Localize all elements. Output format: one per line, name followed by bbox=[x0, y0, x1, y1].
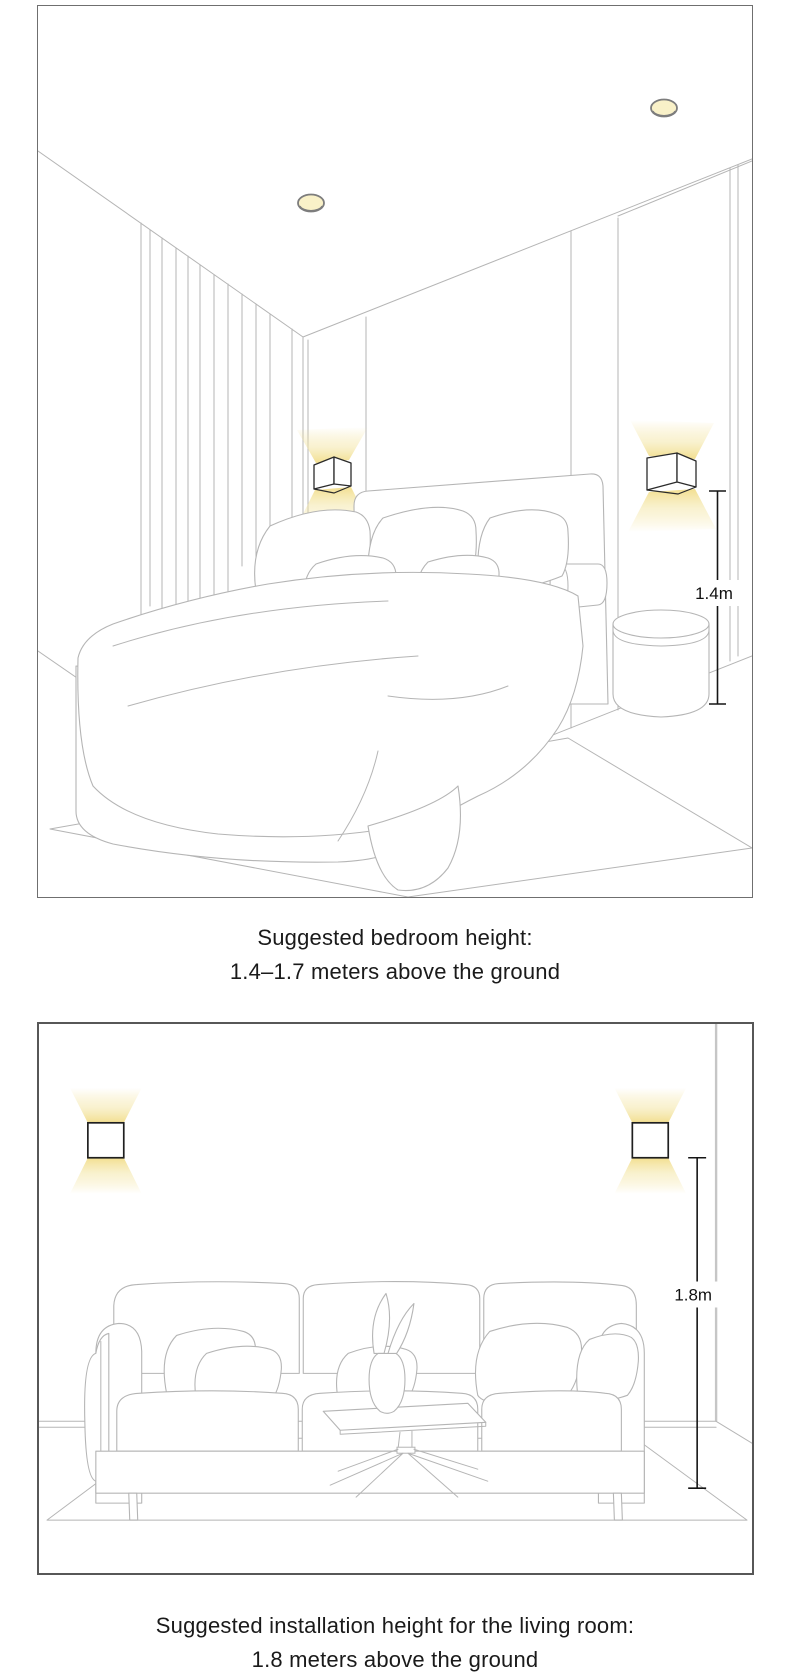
sofa-base bbox=[96, 1451, 644, 1493]
bedroom-caption: Suggested bedroom height: 1.4–1.7 meters… bbox=[0, 921, 790, 989]
seat-cushion bbox=[117, 1391, 298, 1451]
wall-lamp-left bbox=[70, 1088, 142, 1194]
lamp-glow-down bbox=[628, 489, 716, 532]
living-room-illustration: 1.8m bbox=[39, 1024, 752, 1573]
lamp-glow-down bbox=[614, 1158, 686, 1194]
ceiling-downlight-icon bbox=[298, 195, 324, 212]
seat-cushion bbox=[482, 1391, 622, 1451]
side-table bbox=[613, 610, 709, 717]
living-room-caption-line2: 1.8 meters above the ground bbox=[0, 1643, 790, 1677]
wall-lamp-right bbox=[628, 420, 716, 532]
duvet bbox=[78, 572, 583, 836]
sofa-leg bbox=[129, 1493, 138, 1520]
sofa-leg bbox=[613, 1493, 622, 1520]
lamp-glow-up bbox=[614, 1088, 686, 1123]
lamp-glow-up bbox=[70, 1088, 142, 1123]
throw-pillow bbox=[577, 1334, 639, 1401]
measurement-label: 1.8m bbox=[674, 1285, 712, 1304]
lamp-glow-up bbox=[630, 420, 714, 459]
living-room-illustration-frame: 1.8m bbox=[37, 1022, 754, 1575]
living-room-caption: Suggested installation height for the li… bbox=[0, 1609, 790, 1677]
bedroom-illustration: 1.4m bbox=[38, 6, 752, 897]
bedroom-caption-line2: 1.4–1.7 meters above the ground bbox=[0, 955, 790, 989]
wall-lamp-right bbox=[614, 1088, 686, 1194]
product-install-diagram: 1.4m Suggested bedroom height: 1.4–1.7 m… bbox=[0, 0, 790, 1679]
lamp-glow-down bbox=[70, 1158, 142, 1194]
living-room-caption-line1: Suggested installation height for the li… bbox=[0, 1609, 790, 1643]
bedroom-illustration-frame: 1.4m bbox=[37, 5, 753, 898]
height-measurement: 1.8m bbox=[665, 1158, 723, 1488]
ceiling-downlight-icon bbox=[651, 100, 677, 117]
bed bbox=[76, 474, 608, 891]
measurement-label: 1.4m bbox=[695, 584, 733, 603]
sofa bbox=[85, 1282, 645, 1521]
bedroom-caption-line1: Suggested bedroom height: bbox=[0, 921, 790, 955]
